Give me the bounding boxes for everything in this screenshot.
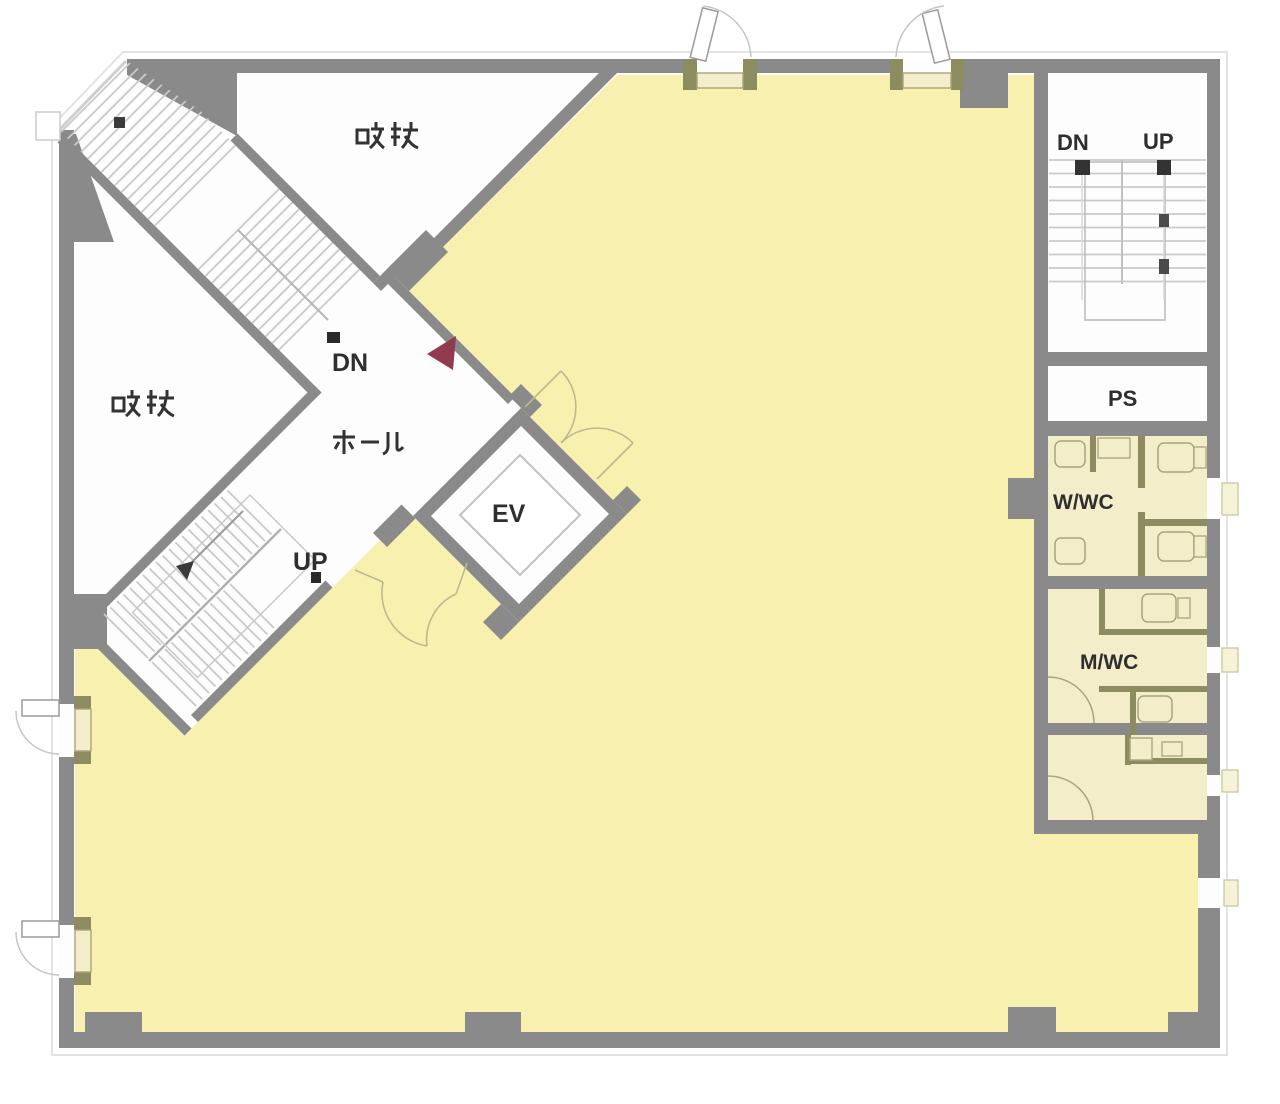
svg-text:M/WC: M/WC — [1080, 651, 1138, 674]
svg-text:DN: DN — [1057, 130, 1089, 155]
svg-text:PS: PS — [1108, 386, 1137, 411]
svg-text:W/WC: W/WC — [1053, 491, 1114, 514]
svg-text:UP: UP — [1143, 129, 1174, 154]
svg-text:DN: DN — [332, 349, 368, 377]
svg-text:UP: UP — [293, 548, 328, 576]
svg-text:EV: EV — [492, 500, 526, 528]
